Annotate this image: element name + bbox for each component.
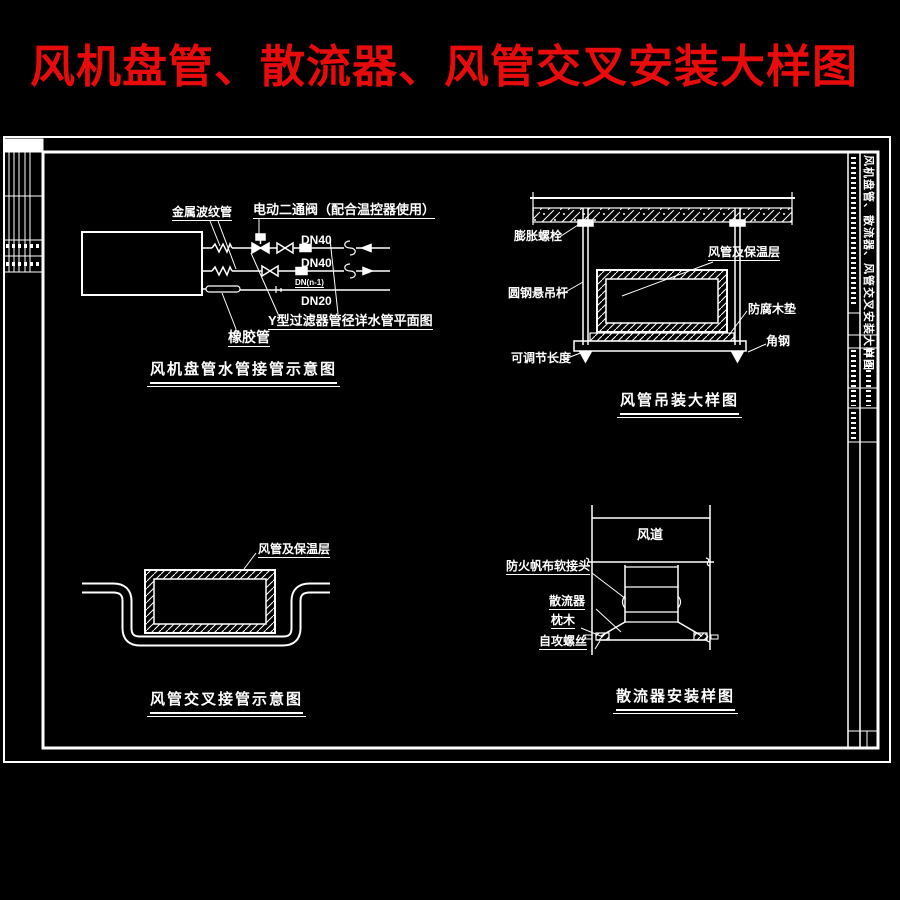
label-electric-valve: 电动二通阀（配合温控器使用）	[253, 203, 435, 219]
leader-wood-pad	[729, 311, 747, 335]
titleblock-drawing-name: 风机盘管、散流器、风管交叉安装大样图	[861, 155, 877, 340]
concrete-slab	[533, 208, 792, 222]
label-expansion-bolt: 膨胀螺栓	[514, 230, 562, 243]
label-hanger-rod: 圆钢悬吊杆	[508, 287, 568, 300]
flow-arrow	[362, 245, 371, 252]
label-angle-steel: 角钢	[766, 335, 790, 348]
duct-body	[606, 279, 718, 323]
leader-flex-joint	[592, 573, 626, 599]
leader-duct-insulation	[244, 553, 256, 569]
label-wood-pad: 防腐木垫	[748, 303, 796, 316]
leader-diffuser	[596, 609, 621, 632]
rod-nut-arrow	[580, 352, 591, 362]
rubber-hose-symbol	[206, 286, 240, 292]
drawing-linework	[0, 0, 900, 900]
corrugated-hose-symbol	[212, 267, 232, 275]
label-adjustable-length: 可调节长度	[511, 352, 571, 365]
caption-fcu-detail: 风机盘管水管接管示意图	[150, 358, 337, 384]
screw-symbol	[711, 635, 718, 639]
strainer-valve-symbol	[277, 243, 293, 253]
illegible-text-marks	[6, 262, 42, 266]
wood-block	[694, 633, 707, 640]
caption-diffuser-detail: 散流器安装样图	[616, 685, 735, 711]
wood-pad	[590, 333, 734, 341]
caption-hanging-detail: 风管吊装大样图	[620, 389, 739, 415]
rod-nut-arrow	[732, 352, 743, 362]
label-duct-insulation: 风管及保温层	[258, 543, 330, 558]
label-strainer-note: Y型过滤器管径详水管平面图	[268, 314, 433, 330]
label-rubber-hose: 橡胶管	[228, 330, 270, 347]
angle-steel	[574, 341, 746, 351]
duct-crossing-detail	[82, 553, 330, 641]
pipe-break-symbol	[345, 264, 356, 278]
caption-crossing-detail: 风管交叉接管示意图	[150, 688, 303, 714]
electric-two-way-valve-symbol	[252, 234, 269, 253]
leader-angle-steel	[748, 344, 766, 352]
expansion-bolt-symbol	[730, 220, 745, 226]
label-diffuser: 散流器	[549, 595, 585, 610]
pipe-size-dn40: DN40	[301, 256, 332, 270]
duct-body	[154, 579, 266, 624]
leader-metal-hose	[218, 221, 236, 269]
illegible-text-marks	[866, 350, 871, 406]
label-metal-hose: 金属波纹管	[172, 206, 232, 221]
sheet-border	[4, 137, 890, 762]
flow-arrow	[363, 268, 372, 275]
label-duct-insulation: 风管及保温层	[708, 246, 780, 261]
leader-metal-hose	[210, 221, 220, 246]
flex-joint-curves	[623, 596, 681, 608]
label-wood-block: 枕木	[551, 614, 575, 629]
strainer-valve-symbol	[262, 266, 278, 276]
pipe-size-dn40: DN40	[301, 233, 332, 247]
leader-strainer	[251, 253, 278, 314]
illegible-text-marks	[851, 350, 856, 406]
illegible-text-marks	[6, 244, 42, 248]
leader-screw	[595, 641, 600, 649]
illegible-text-marks	[851, 157, 856, 307]
leader-rubber-hose	[222, 293, 236, 329]
label-air-duct: 风道	[637, 528, 663, 542]
slope-note: DN(n-1)	[295, 278, 324, 288]
expansion-bolt-symbol	[578, 220, 593, 226]
label-flex-joint: 防火帆布软接头	[506, 560, 590, 575]
cad-drawing-sheet: 风机盘管、散流器、风管交叉安装大样图	[0, 0, 900, 900]
fan-coil-unit-box	[82, 232, 202, 295]
pipe-break-symbol	[345, 241, 356, 255]
hanger-rod	[583, 208, 588, 345]
pipe-size-dn20: DN20	[301, 294, 332, 308]
label-self-tapping-screw: 自攻螺丝	[539, 635, 587, 650]
illegible-text-marks	[851, 412, 856, 440]
duct-hanging-detail	[530, 192, 795, 362]
